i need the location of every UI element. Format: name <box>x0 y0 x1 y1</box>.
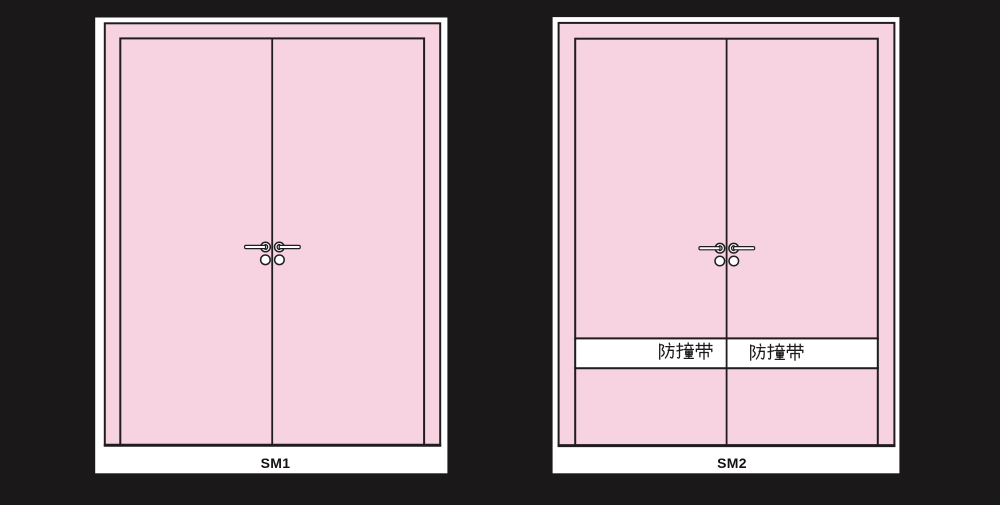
svg-text:SM1: SM1 <box>261 455 291 471</box>
svg-text:SM2: SM2 <box>717 455 747 471</box>
